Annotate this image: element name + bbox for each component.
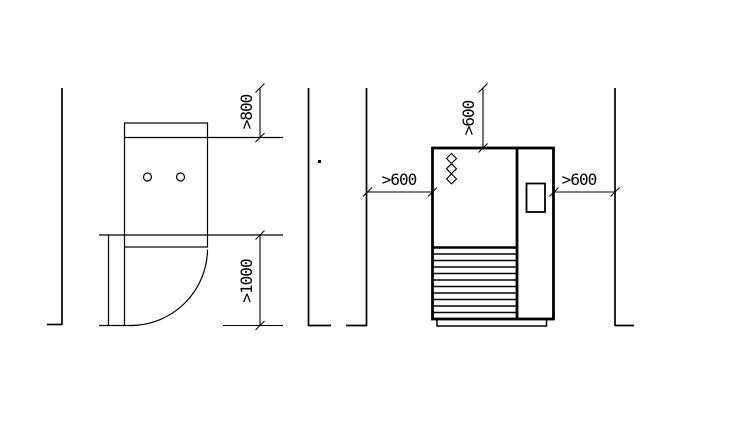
diamond-icon [447, 164, 457, 174]
dim-label-front-clearance: >1000 [239, 259, 255, 302]
diamond-icon [447, 174, 457, 184]
installation-clearance-diagram: >800 >1000 >600 >600 >600 [0, 0, 731, 437]
dim-label-left-clearance: >600 [382, 172, 417, 188]
side-panel-handle [527, 184, 546, 213]
dimension-top-clearance [479, 84, 488, 153]
dim-label-rear-clearance: >800 [239, 95, 255, 130]
stray-mark [318, 160, 321, 163]
diamond-icon [447, 154, 457, 164]
knob-circle-right [177, 173, 185, 181]
dimension-rear-clearance [256, 84, 265, 143]
dim-label-right-clearance: >600 [562, 172, 597, 188]
wall-left-plan [47, 88, 62, 325]
plan-cabinet-body [125, 123, 208, 247]
door-swing-arc [131, 250, 208, 326]
wall-right-plan [309, 88, 332, 326]
wall-right-front [615, 88, 634, 326]
dim-label-top-clearance: >600 [461, 101, 477, 136]
front-view [363, 84, 620, 327]
diamond-indicators [447, 154, 457, 184]
wall-left-front [346, 88, 367, 326]
knob-circle-left [144, 173, 152, 181]
diagram-linework [0, 0, 731, 437]
vent-louvers [434, 248, 517, 313]
